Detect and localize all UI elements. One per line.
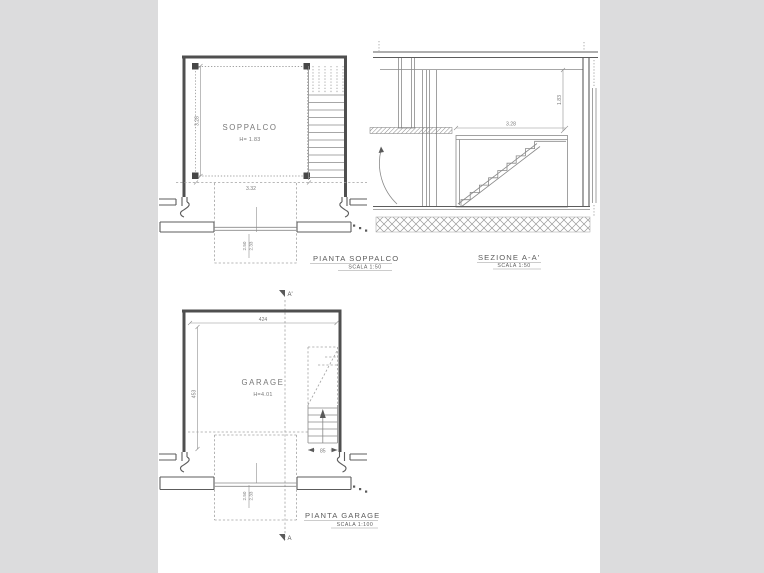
garage-room-height: H=4.01 [253,392,272,398]
ground-hatch [376,217,590,232]
soppalco-column [304,173,311,180]
soppalco-column [304,63,311,70]
svg-text:424: 424 [259,317,268,323]
soppalco-column [192,173,199,180]
sheet [158,0,600,573]
garage-title: PIANTA GARAGE [305,511,380,520]
soppalco-room-label: SOPPALCO [222,123,277,132]
dim-soppalco-opening-lower: 2.33 [249,241,254,250]
section-scale-label: SCALA 1:50 [497,263,530,269]
svg-text:1.83: 1.83 [557,95,563,105]
dim-garage-opening-lower: 2.33 [249,491,254,500]
section-title: SEZIONE A-A' [478,253,540,262]
dim-garage-opening-upper: 2.50 [242,491,247,500]
garage-room-label: GARAGE [242,378,285,387]
architectural-drawing: SOPPALCO H= 1.83 3.28 3.32 [0,0,764,573]
soppalco-scale-label: SCALA 1:50 [348,265,381,271]
svg-text:3.28: 3.28 [195,116,201,126]
soppalco-room-height: H= 1.83 [239,137,260,143]
svg-text:A': A' [288,292,293,298]
drawing-canvas: SOPPALCO H= 1.83 3.28 3.32 [0,0,764,573]
svg-text:453: 453 [192,390,198,399]
soppalco-column [192,63,199,70]
garage-scale-label: SCALA 1:100 [337,522,374,528]
dim-soppalco-opening-upper: 2.50 [242,241,247,250]
svg-text:85: 85 [320,448,326,454]
mezzanine-slab-hatch [370,128,452,134]
svg-text:3.28: 3.28 [506,122,516,128]
svg-text:3.32: 3.32 [246,186,256,192]
svg-text:A: A [288,536,292,542]
soppalco-title: PIANTA SOPPALCO [313,254,399,263]
